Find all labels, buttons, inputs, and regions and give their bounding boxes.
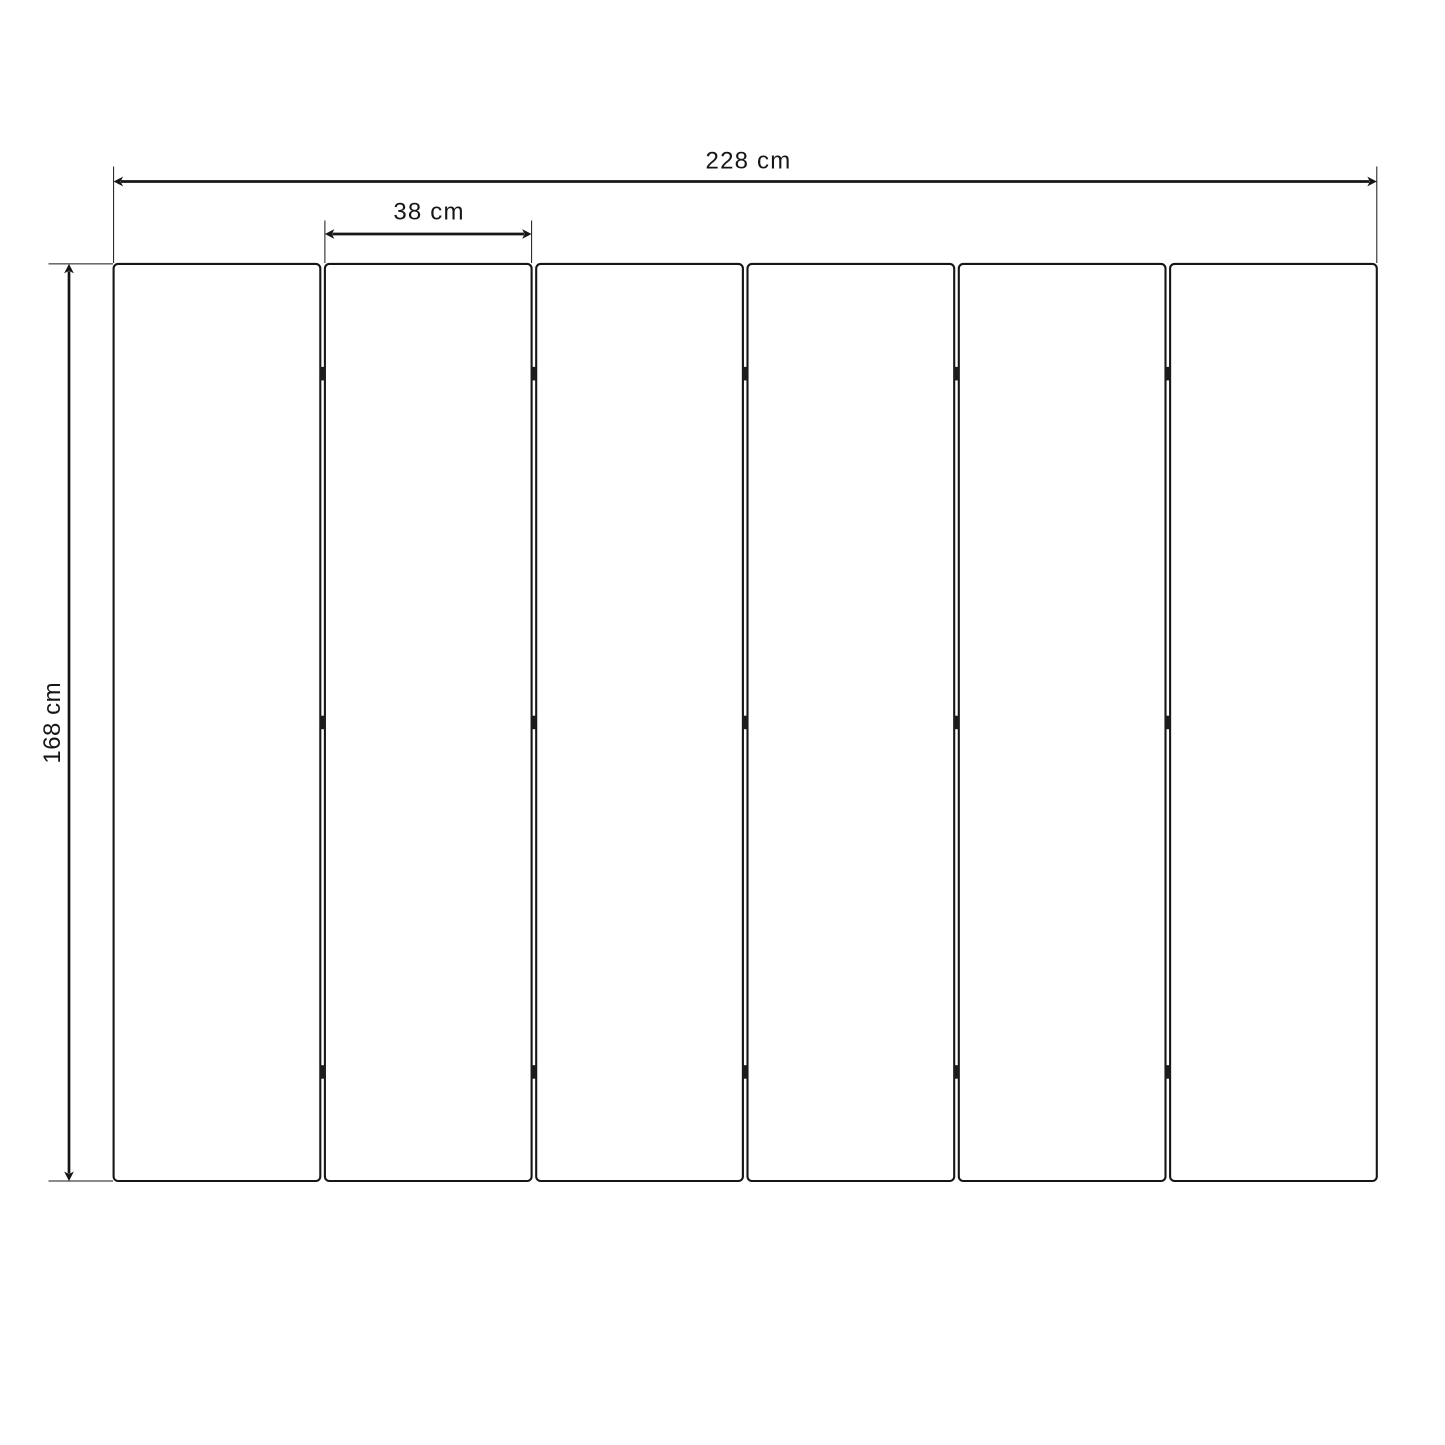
svg-text:228 cm: 228 cm [706, 148, 792, 175]
svg-text:168 cm: 168 cm [39, 682, 66, 764]
svg-text:38 cm: 38 cm [393, 198, 464, 225]
